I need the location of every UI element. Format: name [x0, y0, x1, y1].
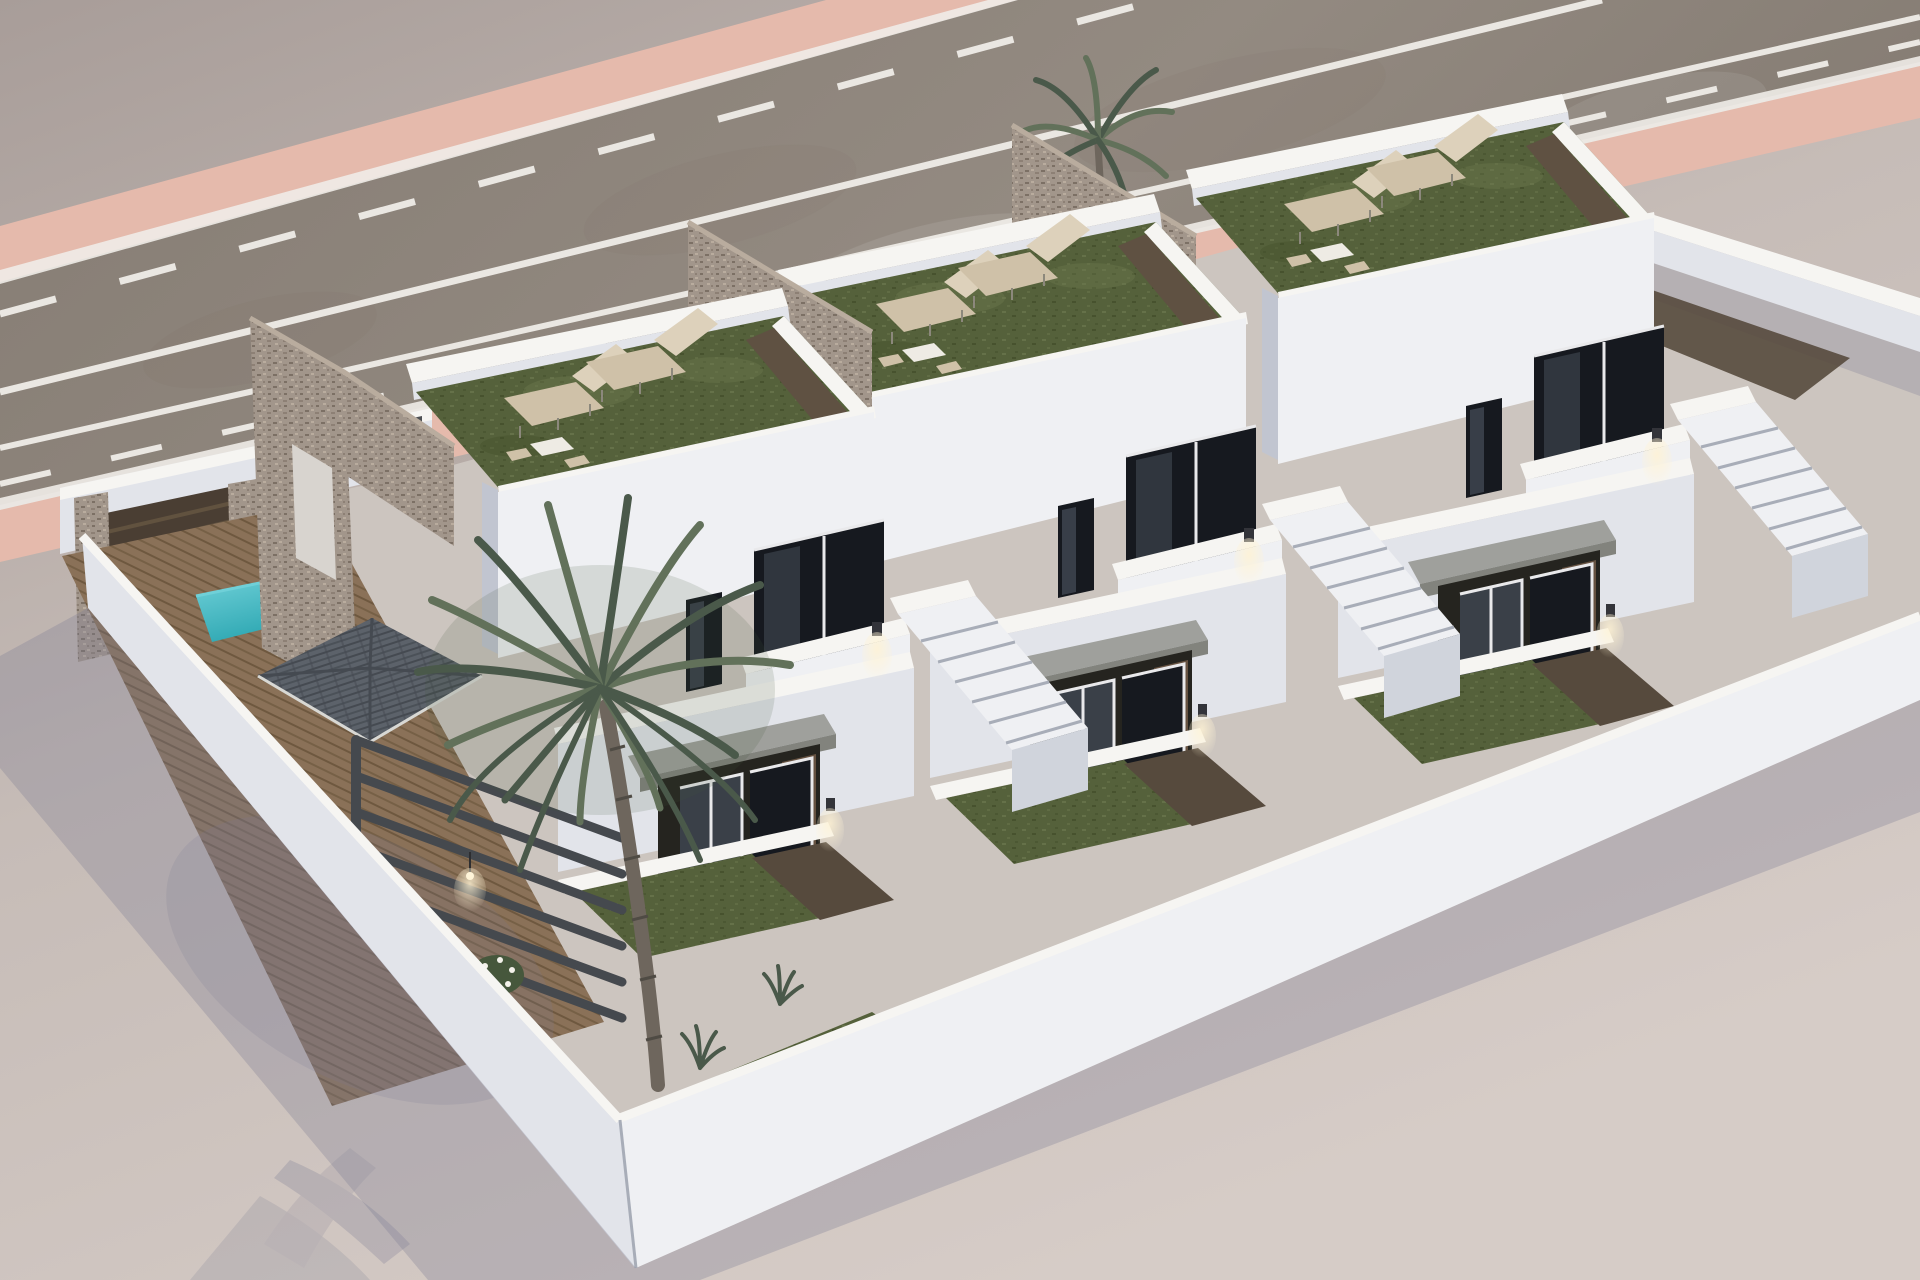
render-canvas: [0, 0, 1920, 1280]
architectural-render: [0, 0, 1920, 1280]
